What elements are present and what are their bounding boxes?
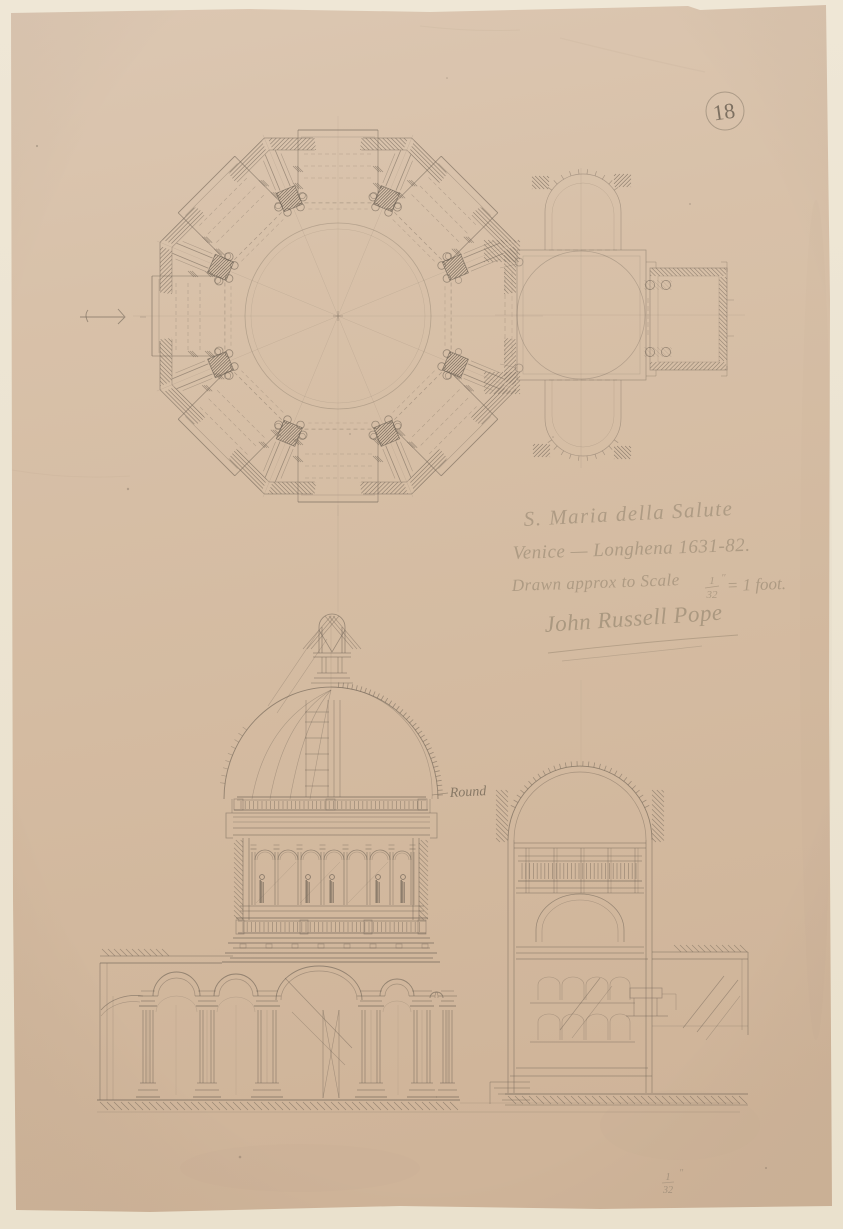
svg-text:= 1 foot.: = 1 foot.: [726, 574, 786, 595]
svg-text:″: ″: [721, 572, 726, 584]
svg-text:32: 32: [662, 1185, 673, 1196]
svg-text:Round: Round: [448, 784, 487, 801]
svg-text:1: 1: [666, 1172, 671, 1183]
svg-text:1: 1: [709, 575, 715, 587]
svg-text:18: 18: [711, 98, 736, 126]
